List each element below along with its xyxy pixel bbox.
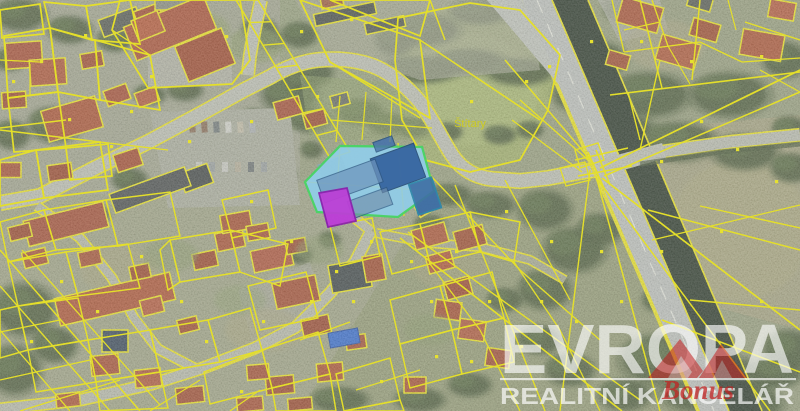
svg-text:EVROPA: EVROPA bbox=[500, 310, 794, 388]
svg-text:REALITNÍ KANCELÁŘ: REALITNÍ KANCELÁŘ bbox=[500, 382, 794, 409]
svg-text:Bonus: Bonus bbox=[661, 375, 734, 405]
